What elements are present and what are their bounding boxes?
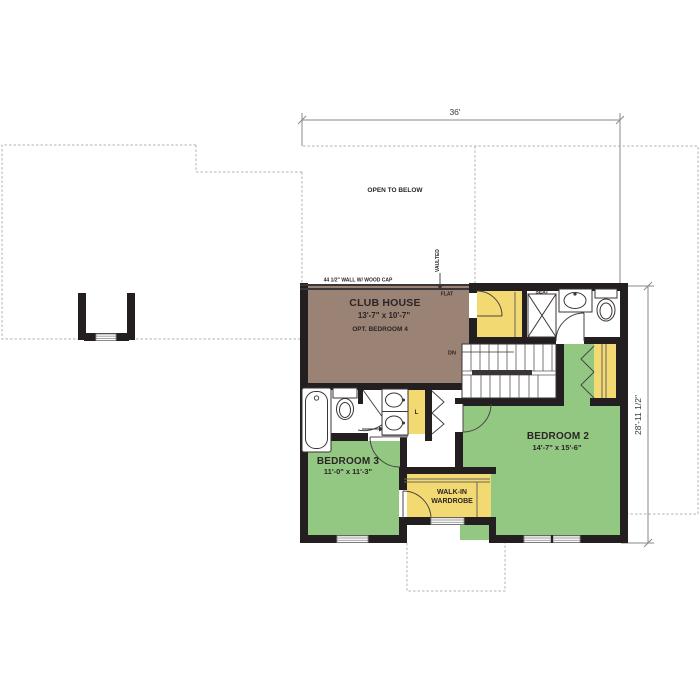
faucet-icon (573, 292, 576, 295)
floor-plan-drawing: 36' 28'-11 1/2" (0, 0, 700, 700)
chimney-vent (96, 334, 116, 341)
toilet-nook-wall (358, 388, 363, 404)
height-dimension-label: 28'-11 1/2" (633, 395, 643, 435)
toilet-icon (595, 289, 617, 298)
window (524, 536, 551, 543)
half-wall-wood-cap (300, 284, 472, 286)
bedroom-2-wall-left (455, 432, 463, 467)
window-mullion (551, 535, 553, 543)
width-dimension-label: 36' (449, 107, 460, 117)
bedroom-3-name: BEDROOM 3 (317, 456, 380, 467)
stairs: DN (448, 344, 556, 398)
window (337, 536, 368, 543)
outer-wall-right (620, 283, 628, 543)
stair-wall-right (556, 344, 564, 406)
bedroom-2-closet-wall-bottom (590, 398, 628, 406)
sink-icon (386, 416, 403, 430)
bathroom-wall (469, 337, 556, 344)
bedroom-2-closet-wall (616, 342, 622, 402)
bedroom-2-dims: 14'-7" x 15'-6" (532, 443, 581, 452)
wardrobe-name-line2: WARDROBE (431, 498, 473, 505)
bedroom-2-name: BEDROOM 2 (527, 431, 590, 442)
window (553, 536, 580, 543)
club-house-dims: 13'-7" x 10'-7" (358, 311, 411, 320)
club-house-note: OPT. BEDROOM 4 (352, 326, 408, 333)
seat-label: SEAT (536, 290, 549, 296)
bedroom-3-dims: 11'-0" x 11'-3" (324, 467, 373, 476)
stair-wall-bottom (455, 398, 564, 406)
club-house-name: CLUB HOUSE (349, 297, 420, 309)
wall-cap-label: 44 1/2" WALL W/ WOOD CAP (324, 278, 393, 284)
chimney-wall-left (78, 293, 86, 340)
faucet-icon (402, 399, 405, 402)
flat-label: FLAT (441, 292, 453, 298)
wardrobe-name-line1: WALK-IN (437, 489, 467, 496)
closet-shower-divider (522, 291, 527, 338)
floor-plan-page: 36' 28'-11 1/2" (0, 0, 700, 700)
faucet-icon (402, 422, 405, 425)
wardrobe-wall-top (399, 467, 496, 474)
open-to-below-label: OPEN TO BELOW (367, 187, 423, 194)
linen-label: L (415, 410, 419, 416)
chimney-wall-right (127, 293, 135, 340)
down-label: DN (448, 351, 456, 357)
window (431, 518, 464, 525)
toilet-icon (333, 388, 357, 398)
stair-handrail (472, 370, 532, 375)
hall-wall (425, 390, 432, 441)
sink-icon (386, 393, 403, 407)
vaulted-label: VAULTED (435, 249, 441, 272)
